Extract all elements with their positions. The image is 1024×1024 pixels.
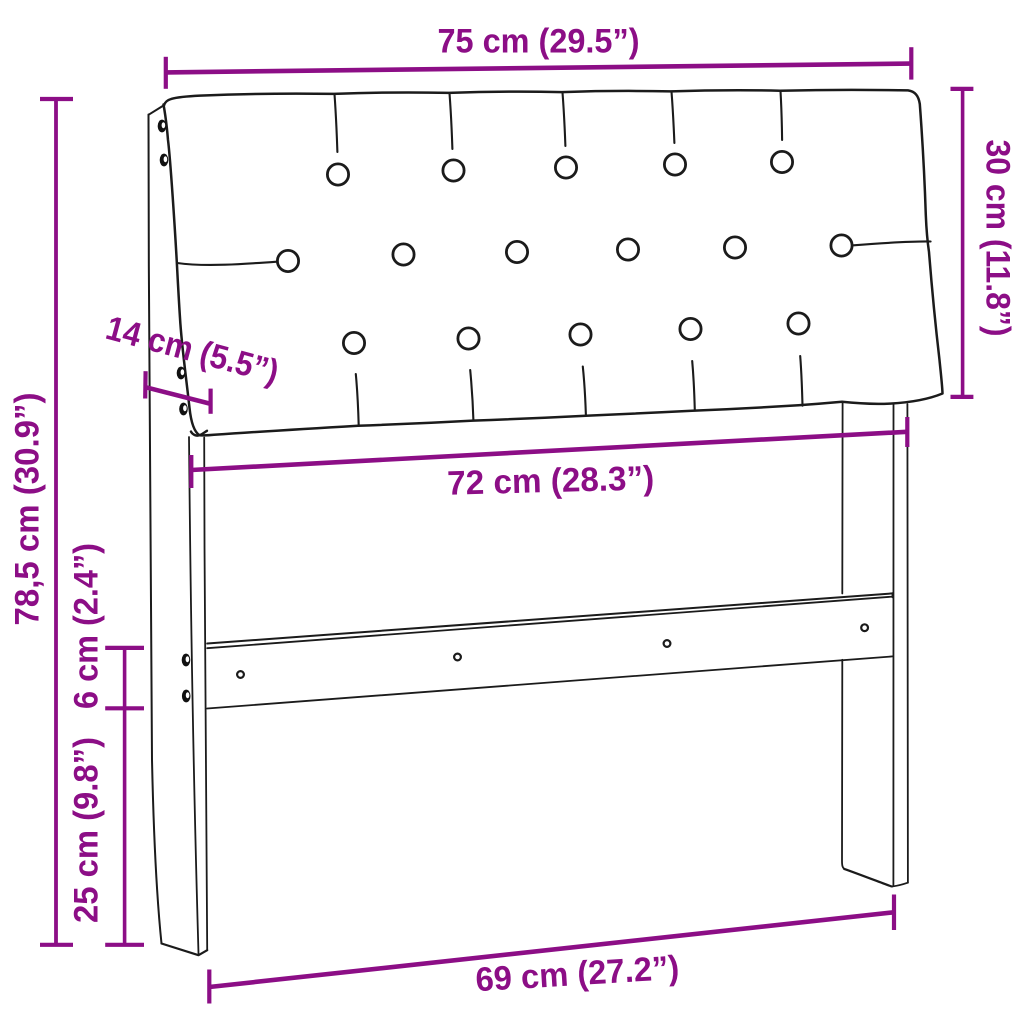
- svg-text:6 cm (2.4”): 6 cm (2.4”): [68, 543, 106, 709]
- svg-text:75 cm (29.5”): 75 cm (29.5”): [438, 23, 640, 61]
- svg-text:72 cm (28.3”): 72 cm (28.3”): [447, 459, 655, 502]
- svg-text:78,5 cm (30.9”): 78,5 cm (30.9”): [8, 393, 46, 626]
- svg-text:30 cm (11.8”): 30 cm (11.8”): [979, 140, 1017, 337]
- svg-text:25 cm (9.8”): 25 cm (9.8”): [68, 737, 106, 923]
